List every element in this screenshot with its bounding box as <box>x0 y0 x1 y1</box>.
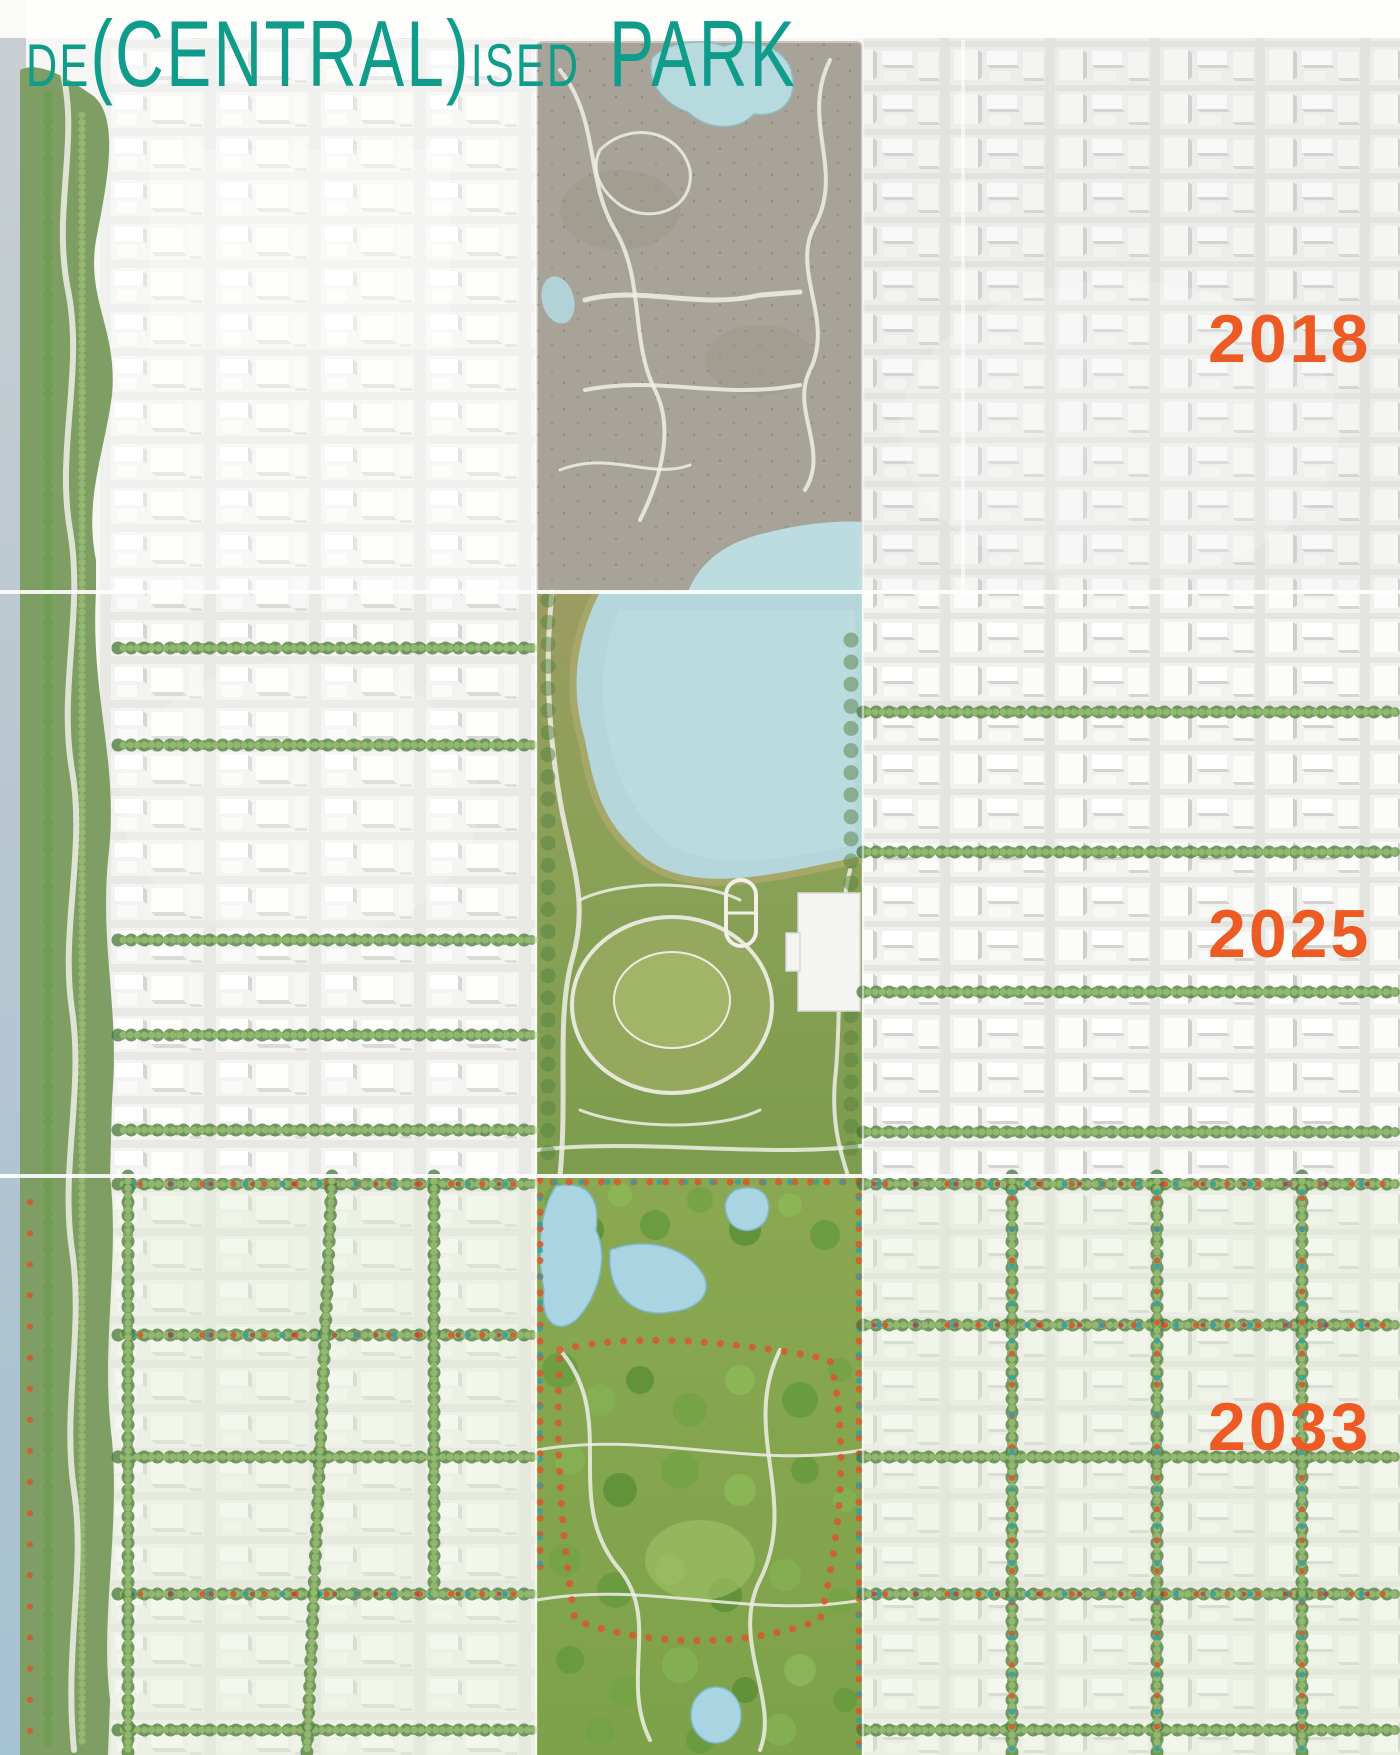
year-label-2018: 2018 <box>1208 300 1400 378</box>
park-2025 <box>537 592 862 1176</box>
title-part-ised: ISED <box>471 31 580 100</box>
title-part-central: (CENTRAL) <box>90 0 470 108</box>
poster-root: DE(CENTRAL)ISEDPARK 2018 2025 2033 <box>0 0 1400 1755</box>
park-2018 <box>536 42 862 592</box>
central-park-map-illustration <box>0 0 1400 1755</box>
park-2033 <box>537 1176 862 1755</box>
poster-title: DE(CENTRAL)ISEDPARK <box>26 0 797 108</box>
title-part-park: PARK <box>609 0 797 108</box>
year-label-2033: 2033 <box>1208 1388 1400 1466</box>
year-label-2025: 2025 <box>1208 895 1400 973</box>
title-part-de: DE <box>26 31 90 100</box>
